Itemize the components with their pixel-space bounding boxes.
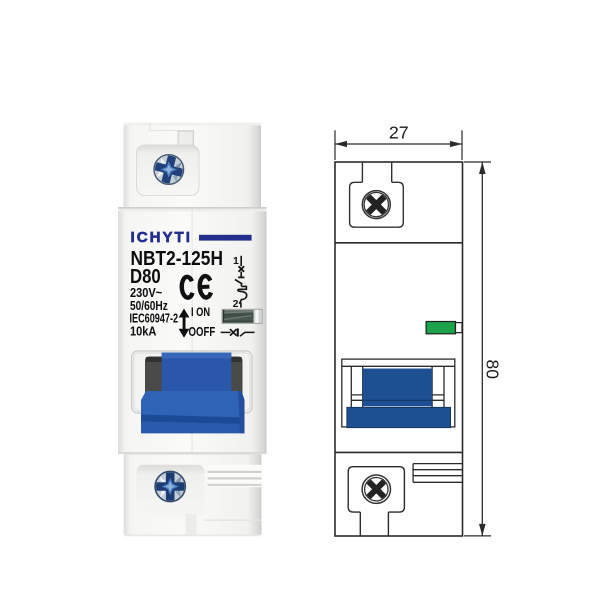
svg-text:OOFF: OOFF	[189, 326, 216, 340]
svg-text:I ON: I ON	[191, 306, 210, 320]
svg-text:230V~: 230V~	[130, 285, 162, 300]
svg-text:2: 2	[233, 298, 239, 310]
svg-text:D80: D80	[130, 264, 161, 287]
svg-text:10kA: 10kA	[130, 324, 157, 339]
svg-text:ICHYTI: ICHYTI	[131, 229, 192, 246]
svg-text:80: 80	[483, 360, 503, 380]
svg-text:1: 1	[233, 255, 239, 267]
svg-text:27: 27	[389, 122, 409, 142]
